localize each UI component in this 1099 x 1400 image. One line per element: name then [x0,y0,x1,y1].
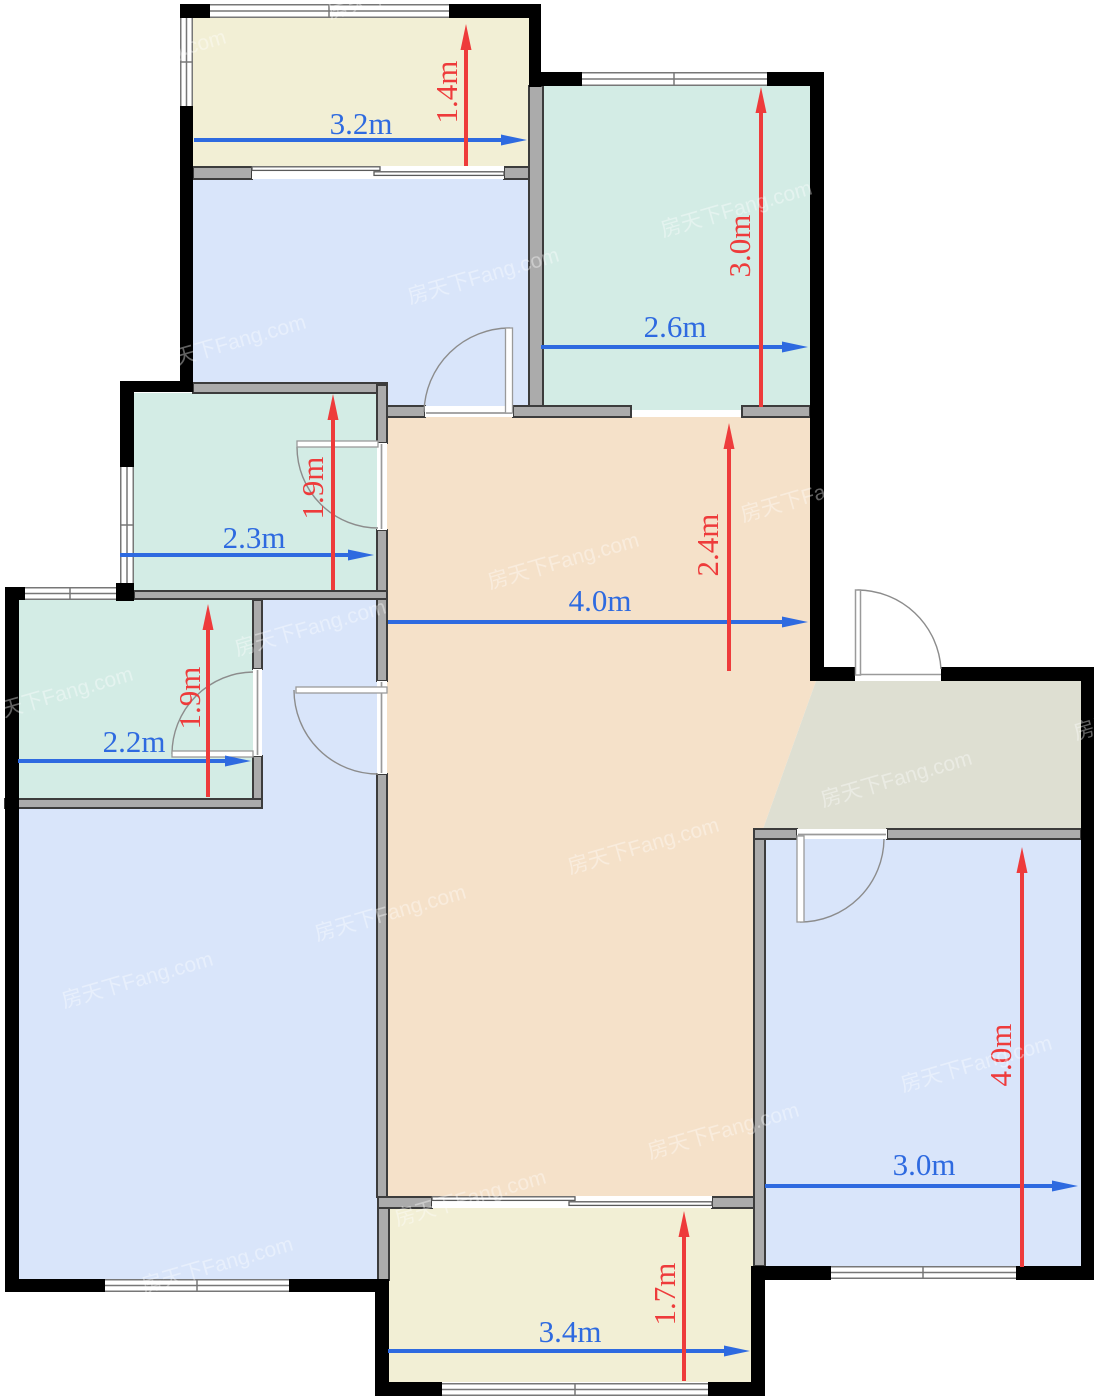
svg-text:2.4m: 2.4m [690,514,725,577]
svg-text:1.4m: 1.4m [429,61,464,124]
svg-text:2.6m: 2.6m [644,309,707,344]
svg-text:3.0m: 3.0m [893,1147,956,1182]
svg-text:1.9m: 1.9m [172,667,207,730]
svg-text:3.2m: 3.2m [330,106,393,141]
svg-text:1.9m: 1.9m [295,457,330,520]
svg-text:房天下Fang.com: 房天下Fang.com [991,395,1099,460]
svg-text:3.4m: 3.4m [539,1314,602,1349]
svg-text:2.3m: 2.3m [223,520,286,555]
svg-text:1.7m: 1.7m [647,1263,682,1326]
svg-text:4.0m: 4.0m [569,583,632,618]
svg-text:3.0m: 3.0m [722,215,757,278]
svg-text:2.2m: 2.2m [103,724,166,759]
svg-text:房天下Fang.com: 房天下Fang.com [911,110,1068,175]
